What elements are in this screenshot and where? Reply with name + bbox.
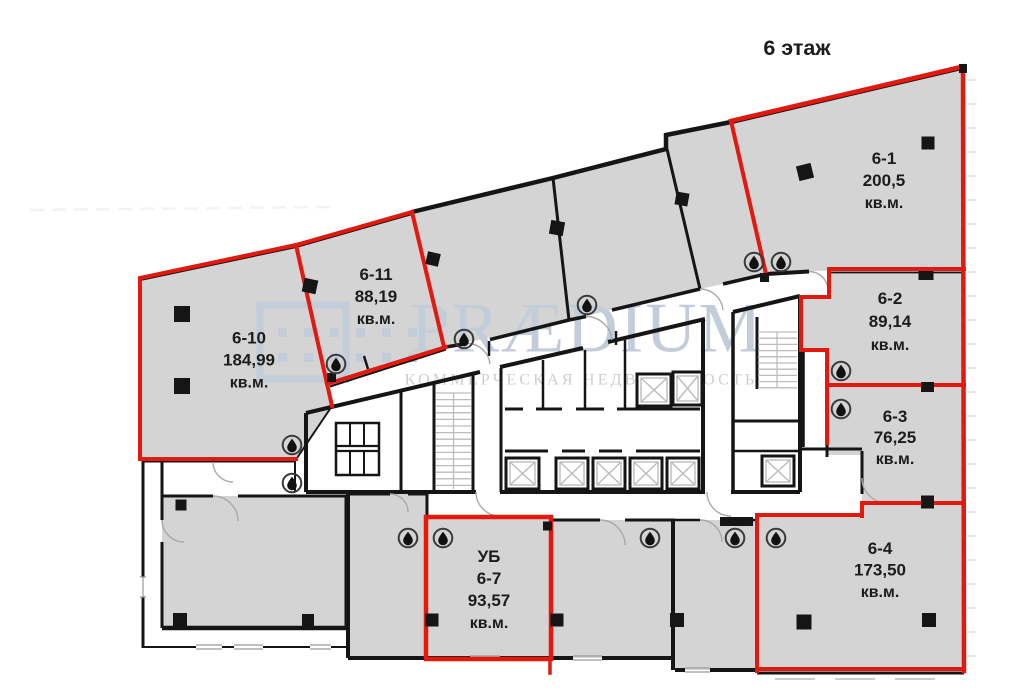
svg-text:6-4: 6-4: [868, 539, 893, 558]
svg-text:УБ: УБ: [478, 547, 501, 566]
svg-text:6-2: 6-2: [878, 289, 903, 308]
svg-text:6-3: 6-3: [883, 407, 908, 426]
svg-text:кв.м.: кв.м.: [470, 615, 509, 632]
svg-text:6-7: 6-7: [477, 569, 502, 588]
svg-text:кв.м.: кв.м.: [876, 451, 915, 468]
svg-text:кв.м.: кв.м.: [357, 311, 396, 328]
svg-text:кв.м.: кв.м.: [865, 195, 904, 212]
svg-text:93,57: 93,57: [468, 591, 511, 610]
svg-text:6-1: 6-1: [872, 149, 897, 168]
svg-text:кв.м.: кв.м.: [871, 337, 910, 354]
svg-text:200,5: 200,5: [863, 171, 906, 190]
svg-text:6-11: 6-11: [359, 265, 392, 284]
svg-text:6-10: 6-10: [232, 329, 266, 348]
svg-text:173,50: 173,50: [854, 561, 906, 580]
svg-text:кв.м.: кв.м.: [230, 375, 269, 392]
svg-text:6 этаж: 6 этаж: [763, 36, 831, 60]
svg-text:76,25: 76,25: [874, 428, 917, 447]
svg-text:88,19: 88,19: [355, 287, 398, 306]
svg-text:кв.м.: кв.м.: [861, 584, 900, 601]
svg-text:184,99: 184,99: [223, 351, 275, 370]
svg-text:89,14: 89,14: [869, 312, 912, 331]
